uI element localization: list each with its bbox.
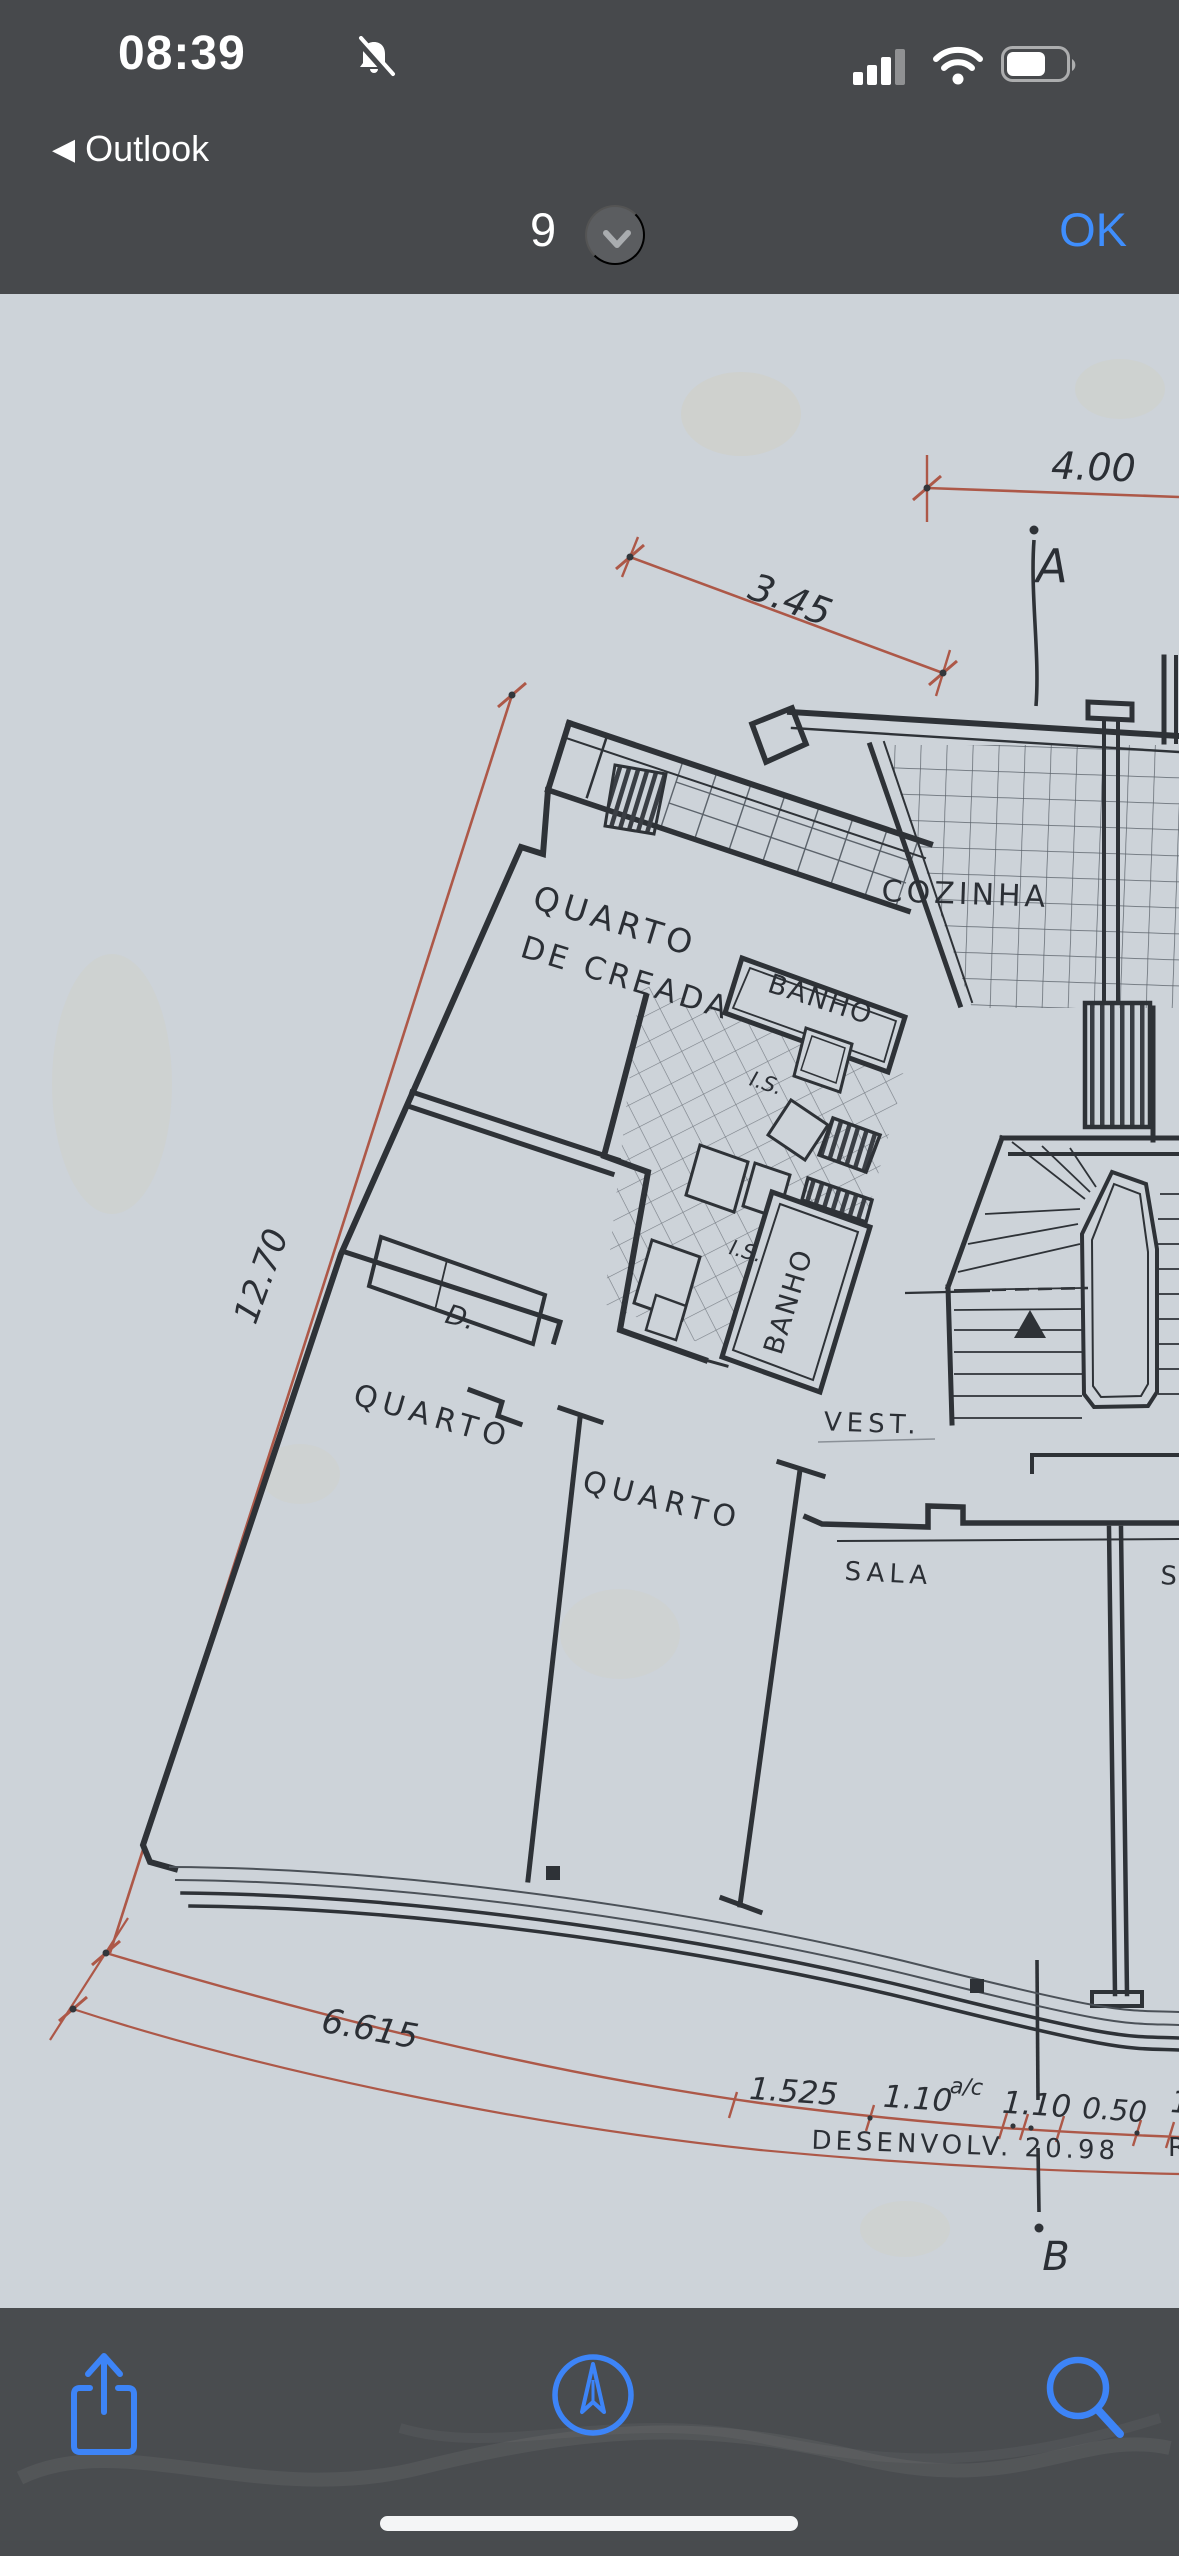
compass-needle-icon: [548, 2350, 638, 2440]
back-chevron-icon: ◀: [52, 132, 75, 167]
iphone-screen: 08:39 ◀ Outlook: [0, 0, 1179, 2556]
status-bar: 08:39 ◀ Outlook: [0, 0, 1179, 180]
balcony-shutter-hatch: [605, 765, 666, 834]
markup-compass-button[interactable]: [548, 2350, 638, 2443]
cellular-signal-icon: [853, 44, 915, 91]
plan-labels: 4.00 A 3.45 12.70 COZINHA QUARTO DE CREA…: [131, 444, 1179, 2308]
dimension-lines: [50, 455, 1179, 2174]
share-icon: [62, 2350, 158, 2460]
section-marker-b: B: [1042, 2234, 1069, 2280]
section-marker-a: A: [1033, 539, 1067, 593]
chevron-down-icon: [606, 233, 628, 245]
room-label-sala-2: SA: [1160, 1561, 1179, 1593]
dim-3-45: 3.45: [743, 565, 838, 635]
battery-icon: [1001, 46, 1079, 89]
dim-6-615: 6.615: [319, 2001, 422, 2057]
dim-1-10-a: 1.10: [882, 2079, 953, 2120]
dim-0-50: 0.50: [1081, 2091, 1148, 2129]
floorplan-drawing: 4.00 A 3.45 12.70 COZINHA QUARTO DE CREA…: [0, 294, 1179, 2308]
dim-1-525: 1.525: [748, 2071, 839, 2113]
ok-button[interactable]: OK: [1059, 202, 1127, 257]
room-label-quarto-2: QUARTO: [579, 1464, 745, 1537]
page-dropdown-button[interactable]: [585, 205, 645, 265]
paper-stains: [52, 359, 1165, 2257]
back-to-app-link[interactable]: ◀ Outlook: [52, 128, 209, 170]
dim-1-10-b: 1.10: [1001, 2085, 1072, 2126]
floorplan-document[interactable]: 4.00 A 3.45 12.70 COZINHA QUARTO DE CREA…: [0, 294, 1179, 2308]
status-time: 08:39: [118, 26, 246, 81]
page-number: 9: [530, 202, 556, 257]
room-label-cozinha: COZINHA: [881, 874, 1050, 915]
dim-ac: a/c: [949, 2074, 984, 2101]
viewer-nav-bar: 9 OK: [0, 180, 1179, 294]
room-label-quarto-1: QUARTO: [350, 1378, 516, 1456]
wifi-icon: [931, 44, 985, 91]
bottom-toolbar: [0, 2308, 1179, 2556]
room-label-sala: SALA: [844, 1557, 933, 1592]
top-chrome: 08:39 ◀ Outlook: [0, 0, 1179, 294]
search-icon: [1040, 2350, 1132, 2446]
dim-partial-1: 1: [1169, 2084, 1179, 2121]
dim-4-00: 4.00: [1050, 444, 1136, 491]
room-label-d: D.: [442, 1299, 478, 1337]
dim-partial-r: R: [1168, 2133, 1179, 2163]
share-button[interactable]: [62, 2350, 158, 2463]
room-label-vest: VEST.: [823, 1407, 921, 1440]
search-button[interactable]: [1040, 2350, 1132, 2449]
staircase: [905, 1142, 1179, 1418]
dim-12-70: 12.70: [226, 1224, 297, 1329]
back-app-label: Outlook: [85, 128, 209, 170]
notifications-silenced-icon: [352, 36, 396, 85]
home-indicator[interactable]: [380, 2516, 798, 2531]
